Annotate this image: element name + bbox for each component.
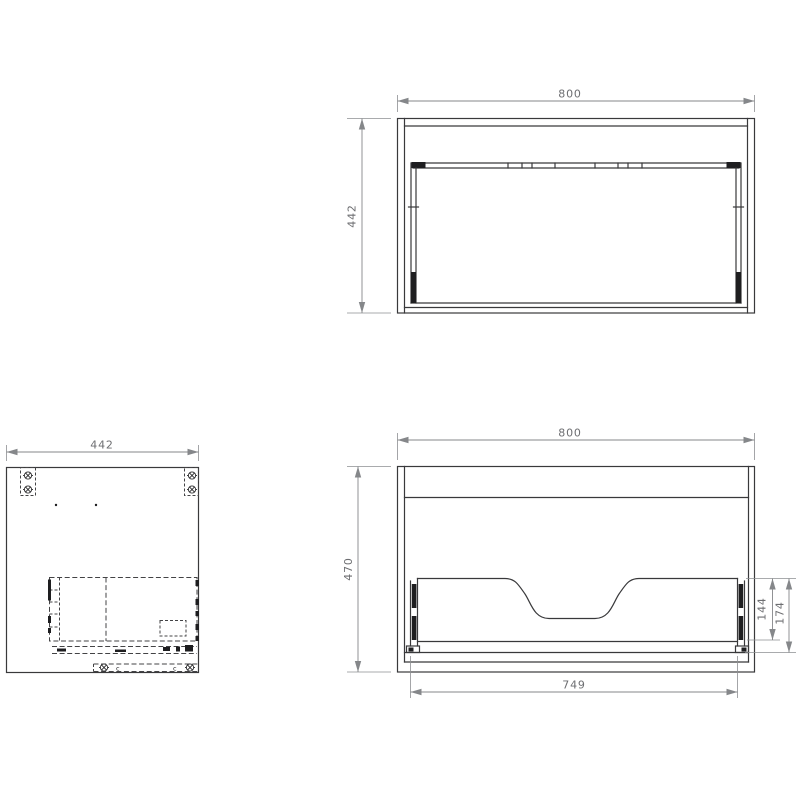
cabinet-technical-drawing: 800 442: [0, 0, 800, 800]
side-view-wall-fixings-right: [185, 468, 199, 496]
technical-drawing-page: 800 442: [0, 0, 800, 800]
dim-top-view-depth: 442: [346, 119, 392, 314]
side-view-panel: [7, 468, 199, 673]
screw-icon: [99, 664, 109, 671]
top-view-outer-rect: [398, 119, 755, 314]
screw-icon: [187, 472, 197, 479]
screw-icon: [23, 472, 33, 479]
clip-mark-right: c: [173, 665, 177, 673]
side-view-bottom-hardware-hidden: c c: [94, 664, 199, 673]
dim-front-view-height: 470: [342, 467, 391, 673]
top-view-carcass-outline: [398, 119, 755, 314]
dowel-dot: [55, 504, 57, 506]
screw-icon: [187, 486, 197, 493]
dim-back-cutout-height: 144: [746, 579, 796, 641]
dim-label-opening-width: 749: [562, 679, 585, 692]
screw-icon: [23, 486, 33, 493]
dim-label-side-depth: 442: [90, 439, 113, 452]
front-view: 800 470 144 174 749: [342, 427, 796, 699]
drawer-back-panel-with-basin-cutout: [418, 579, 738, 619]
dim-side-view-depth: 442: [7, 439, 199, 462]
dim-label-back-cutout-height: 144: [756, 597, 769, 620]
dim-label-front-height: 470: [342, 557, 355, 580]
clip-mark-left: c: [116, 665, 120, 673]
side-view-wall-fixings-left: [21, 468, 36, 496]
screw-icon: [185, 664, 195, 671]
dim-label-top-width: 800: [558, 88, 581, 101]
dowel-dot: [95, 504, 97, 506]
dim-drawer-box-height: 174: [745, 579, 796, 653]
top-view: 800 442: [346, 88, 755, 314]
top-view-back-rail-joints: [508, 163, 642, 168]
dim-label-top-depth: 442: [346, 204, 359, 227]
side-view: c c 442: [7, 439, 200, 673]
dim-front-view-width: 800: [398, 427, 755, 461]
side-view-drawer-runner-hidden: [48, 578, 199, 654]
dim-top-view-width: 800: [398, 88, 755, 113]
top-view-drawer-box: [409, 162, 744, 303]
dim-label-drawer-box-height: 174: [774, 601, 787, 624]
drawer-bottom-rails: [405, 642, 749, 653]
dim-label-front-width: 800: [558, 427, 581, 440]
side-view-dowel-marks: [55, 504, 97, 506]
